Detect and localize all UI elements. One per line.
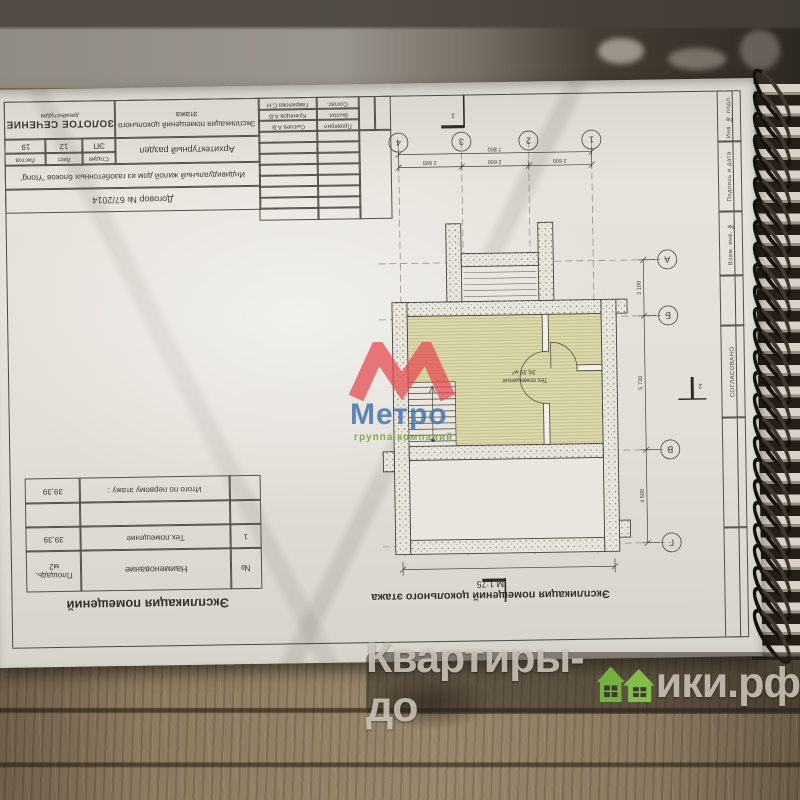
explication-header-num: № [230,547,263,589]
photo-scene: ЗОЛОТОЕ СЕЧЕНИЕ дизайнстудия 19 12 ЭП Ли… [0,0,800,800]
side-field-inv: Инв. № подл. [717,90,742,142]
dimension-labels-top: 7 800 2 600 2 600 2 600 [423,144,567,165]
explication-empty-row [229,499,261,525]
drawing-sheet: ЗОЛОТОЕ СЕЧЕНИЕ дизайнстудия 19 12 ЭП Ли… [0,78,762,668]
svg-text:7 800: 7 800 [488,146,502,152]
axis-labels-right: А Б В Г [664,254,675,547]
side-field-signdate: Подпись и дата [717,140,742,212]
stamp-doc-title-cell: Экспликация помещений цокольного этажа [114,98,261,139]
svg-text:1: 1 [451,112,455,119]
section-mark-1-bottom [482,578,505,602]
explication-total-area: 39,39 [25,478,81,505]
svg-text:Г: Г [669,537,674,547]
explication-header-area: Площадь, м2 [26,550,83,593]
explication-row-area: 39,39 [25,526,81,553]
svg-text:2: 2 [526,136,531,146]
background-highlight [598,38,644,64]
room-area-text: 39,39 м² [511,368,536,375]
stamp-empty-row [259,207,319,221]
svg-text:Б: Б [665,310,671,320]
room-name-text: Тех.помещение [502,376,548,384]
dimension-labels-right: 2 100 5 730 4 500 [637,281,646,503]
background-highlight [668,48,726,70]
stamp-logo-cell: ЗОЛОТОЕ СЕЧЕНИЕ дизайнстудия [4,100,117,141]
staircase [408,382,456,447]
explication-row-num: 1 [229,523,261,549]
lower-room-floor [409,457,604,540]
axis-bubbles-right [658,250,682,552]
section-mark-2-right: 2 [678,377,706,399]
svg-text:5 730: 5 730 [638,376,644,390]
site-watermark-suffix: ики.рф [656,659,800,708]
side-field-empty [722,416,748,528]
company-name: ЗОЛОТОЕ СЕЧЕНИЕ [6,117,114,130]
svg-text:2 100: 2 100 [637,281,643,295]
side-field-vzam: Взам. инв. № [718,210,743,276]
svg-text:В: В [667,444,673,454]
explication-title: Экспликация помещений [57,594,237,615]
svg-text:4 500: 4 500 [640,489,646,503]
dimension-line-bottom [400,558,618,575]
svg-text:А: А [664,254,670,264]
section-mark-1-top: 1 [441,95,465,128]
explication-empty-row [25,502,81,529]
site-watermark-bar: Квартиры-до ики.рф [366,652,800,714]
svg-text:1: 1 [589,135,594,145]
side-field-empty [723,526,749,637]
houses-icon [595,659,656,707]
spiral-binding [752,86,800,660]
svg-text:2: 2 [698,382,702,389]
background-highlight [740,30,780,70]
stamp-empty-row [317,206,361,220]
svg-text:4: 4 [396,138,401,148]
explication-empty-cell [229,475,261,501]
svg-text:2 600: 2 600 [553,157,567,163]
side-field-agreed: СОГЛАСОВАНО [720,324,745,418]
doc-title-line1: Экспликация помещений цокольного [118,117,256,129]
stamp-contract-cell: Договор № 67/2014 [5,185,261,214]
svg-text:3: 3 [459,137,464,147]
site-watermark-prefix: Квартиры-до [366,634,595,732]
explication-header-name: Наименование [80,547,233,591]
wood-table-background-top [0,0,800,88]
side-field-empty [719,274,744,326]
svg-text:2 600: 2 600 [423,159,437,165]
floor-plan: Тех.помещение 39,39 м² 4 3 2 1 [368,87,712,608]
svg-text:2 600: 2 600 [488,158,502,164]
